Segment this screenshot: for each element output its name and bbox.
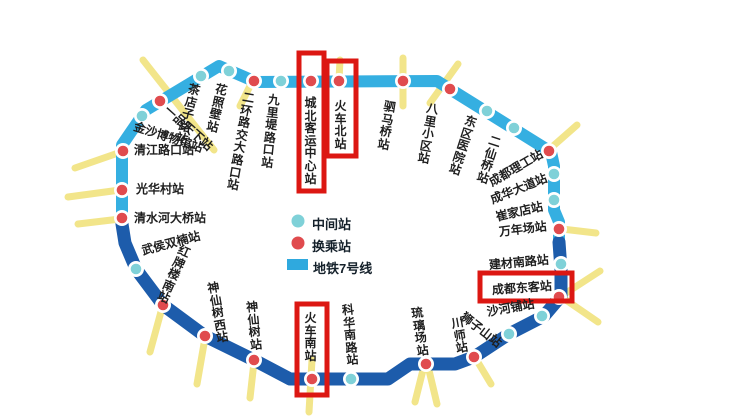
station-marker-jiancainanlu (553, 256, 569, 272)
station-marker-liulichang (418, 356, 434, 372)
transfer-ray (415, 366, 424, 402)
legend-line-swatch (287, 259, 308, 270)
transfer-ray (68, 190, 120, 197)
station-marker-shenxianshu (246, 352, 262, 368)
legend-swatches (287, 215, 308, 271)
station-marker-huazhaobi (221, 63, 237, 79)
station-marker-wuhoushuangnan (128, 261, 144, 277)
transfer-ray (552, 125, 577, 147)
station-marker-guanghuacun (114, 182, 130, 198)
station-marker-shahepu (534, 308, 550, 324)
station-marker-huochebei (331, 73, 347, 89)
station-marker-balixiaoqu (442, 81, 458, 97)
transfer-ray (562, 229, 596, 233)
legend-transfer-swatch (292, 237, 305, 250)
station-marker-shenxianshuxi (197, 328, 213, 344)
station-marker-cuijiadian (546, 192, 562, 208)
map-canvas (0, 0, 752, 417)
legend-label-transfer: 换乘站 (312, 236, 351, 255)
station-marker-erxianqiao (506, 120, 522, 136)
station-label: 光华村站 (136, 183, 184, 196)
station-marker-dongquyiyuan (479, 103, 495, 119)
station-marker-erhuanlu-jiaoda (246, 73, 262, 89)
station-marker-qingjianglukou (115, 143, 131, 159)
legend-label-line: 地铁7号线 (313, 258, 372, 277)
station-label: 清水河大桥站 (134, 212, 206, 225)
legend-intermediate-swatch (292, 215, 305, 228)
station-marker-wannianchang (551, 221, 567, 237)
station-label: 城北客运中心站 (304, 97, 317, 185)
transfer-ray (78, 219, 120, 224)
station-marker-huochenan (304, 371, 320, 387)
station-marker-chengbei-keyun (303, 73, 319, 89)
transfer-ray (150, 308, 162, 352)
transfer-ray (197, 338, 205, 384)
legend-label-intermediate: 中间站 (312, 214, 351, 233)
station-marker-yipintianxia (152, 93, 168, 109)
station-marker-chenghua-dadao (546, 166, 562, 182)
station-marker-simaqiao (395, 73, 411, 89)
station-label: 火车南站 (304, 312, 317, 362)
station-marker-kehuananlu (343, 371, 359, 387)
transfer-ray (75, 152, 121, 168)
station-marker-qingshuihe (114, 210, 130, 226)
station-marker-jiulidi (273, 73, 289, 89)
metro-line7-loop-map: 茶店子路站 花照壁站 二环路交大路口站 九里堤路口站 城北客运中心站 火车北站 … (0, 0, 752, 417)
station-label: 火车北站 (334, 100, 347, 150)
station-marker-chadianzilu (193, 68, 209, 84)
transfer-ray (428, 366, 437, 404)
